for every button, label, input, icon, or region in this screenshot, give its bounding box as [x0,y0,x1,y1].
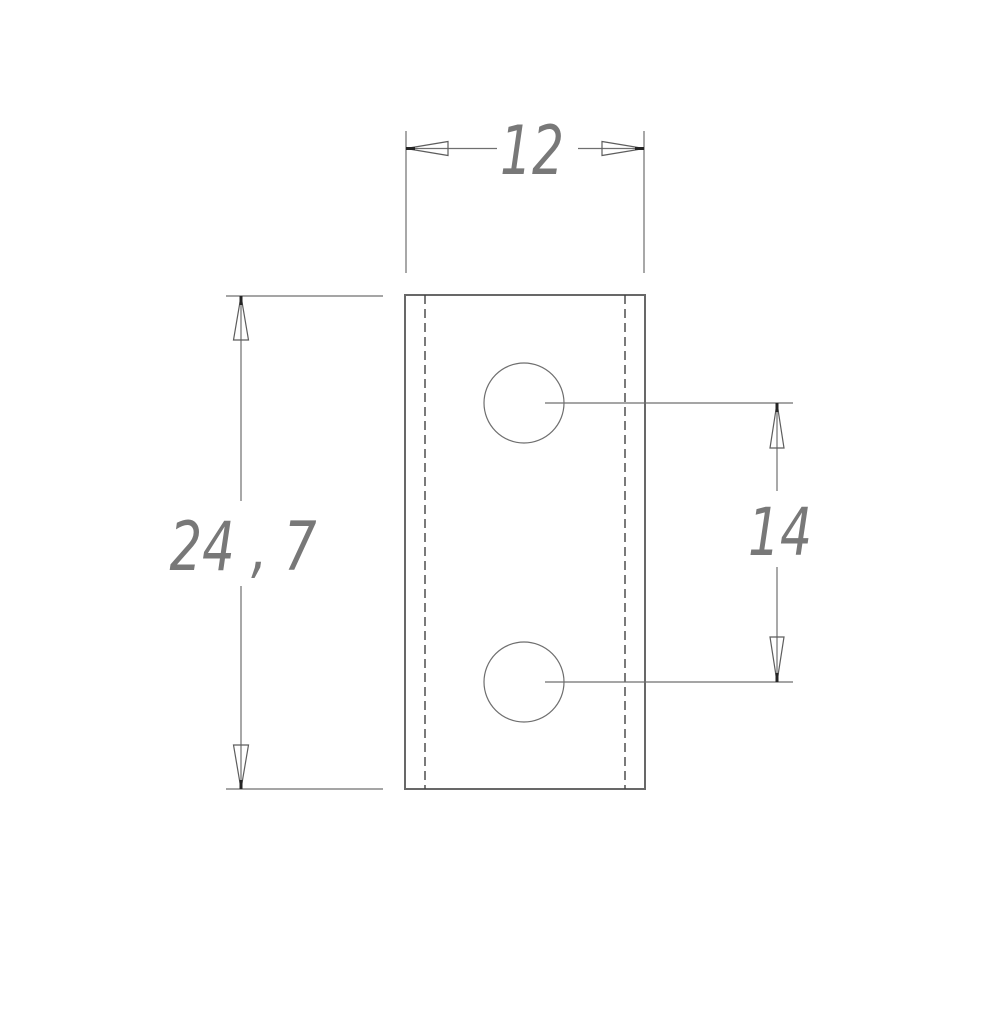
plate-outline [405,295,645,789]
dimension-height-value: 24 , 7 [170,508,317,587]
dimension-width-value: 12 [500,112,564,191]
dimension-hole-spacing: 14 [545,403,812,682]
dimension-width: 12 [406,112,644,273]
dimension-height: 24 , 7 [170,296,384,789]
plate-view [405,295,645,789]
drawing-canvas: 12 24 , 7 14 [0,0,998,1024]
technical-drawing: 12 24 , 7 14 [0,0,998,1024]
dimension-hole-spacing-value: 14 [748,494,812,571]
